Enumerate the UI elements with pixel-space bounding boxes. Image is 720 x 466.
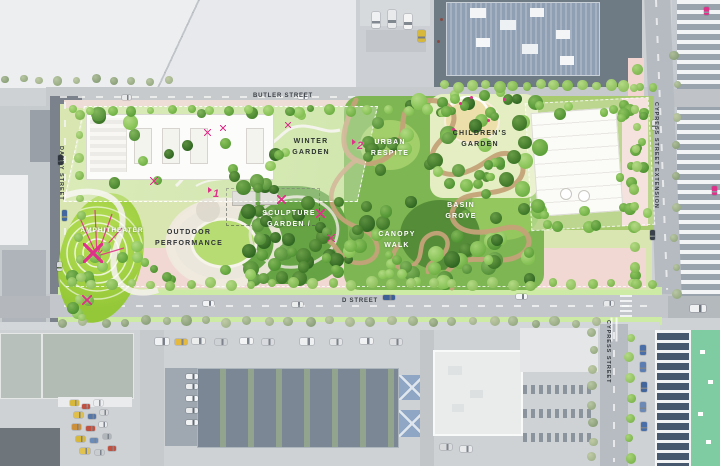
tree-icon [365, 317, 375, 327]
tree-icon [494, 81, 506, 93]
vehicle-icon [712, 186, 717, 195]
tree-icon [334, 197, 344, 207]
tree-icon [631, 279, 642, 290]
winter-garden-label: WINTER GARDEN [278, 136, 344, 158]
vehicle-icon [72, 424, 81, 430]
sculpture-icon [150, 177, 158, 185]
tree-icon [579, 206, 590, 217]
tree-icon [362, 105, 372, 115]
vehicle-icon [203, 301, 214, 306]
vehicle-icon [650, 230, 655, 240]
tree-icon [548, 80, 558, 90]
tree-icon [507, 81, 518, 92]
vehicle-icon [440, 444, 452, 450]
tree-icon [375, 164, 386, 175]
tree-icon [67, 277, 77, 287]
marker-number: 1 [213, 189, 219, 200]
tree-icon [422, 104, 433, 115]
tree-icon [75, 110, 85, 120]
tree-icon [629, 184, 639, 194]
tree-icon [205, 277, 216, 288]
tree-icon [282, 233, 295, 246]
sculpture-icon [204, 129, 211, 136]
vehicle-icon [300, 338, 314, 345]
tree-icon [490, 316, 500, 326]
tree-icon [163, 317, 171, 325]
vehicle-icon [175, 339, 187, 345]
tree-icon [630, 262, 641, 273]
childrens-garden-label: CHILDREN'S GARDEN [444, 128, 516, 150]
tree-icon [123, 115, 137, 129]
tree-icon [648, 280, 657, 289]
marker-number: 2 [357, 141, 363, 152]
tree-icon [309, 239, 322, 252]
tree-icon [587, 401, 596, 410]
vehicle-icon [388, 10, 396, 28]
tree-icon [672, 203, 681, 212]
vehicle-icon [404, 14, 412, 29]
tree-icon [508, 316, 518, 326]
tree-icon [484, 255, 493, 264]
tree-icon [187, 280, 196, 289]
tree-icon [549, 278, 558, 287]
vehicle-icon [122, 95, 131, 100]
tree-icon [188, 105, 196, 113]
map-marker-2: 2 [352, 141, 363, 152]
accent-dot-icon [470, 96, 473, 99]
tree-icon [566, 279, 577, 290]
tree-icon [131, 241, 143, 253]
tree-icon [1, 76, 9, 84]
tree-icon [329, 278, 339, 288]
cypress-street-label: CYPRESS STREET [605, 320, 611, 384]
tree-icon [307, 278, 318, 289]
tree-icon [76, 195, 83, 202]
vehicle-icon [103, 434, 111, 439]
sculpture-icon [327, 234, 335, 242]
tree-icon [117, 252, 128, 263]
vehicle-icon [604, 301, 614, 306]
tree-icon [460, 179, 473, 192]
vehicle-icon [330, 339, 342, 345]
tree-icon [220, 265, 231, 276]
vehicle-icon [86, 426, 95, 431]
tree-icon [518, 136, 532, 150]
tree-icon [165, 76, 173, 84]
tree-icon [630, 202, 639, 211]
tree-icon [20, 75, 28, 83]
vehicle-icon [186, 420, 198, 425]
tree-icon [74, 153, 84, 163]
tree-icon [486, 173, 494, 181]
tree-icon [307, 105, 314, 112]
tree-icon [265, 161, 275, 171]
tree-icon [525, 281, 536, 292]
tree-icon [543, 220, 552, 229]
d-street-label: D STREET [320, 298, 400, 304]
tree-icon [182, 140, 193, 151]
tree-icon [164, 149, 174, 159]
tree-icon [428, 262, 440, 274]
tree-icon [285, 107, 294, 116]
vehicle-icon [360, 338, 373, 344]
vehicle-icon [640, 345, 646, 355]
tree-icon [76, 131, 84, 139]
flag-icon [352, 139, 356, 145]
vehicle-icon [418, 30, 425, 42]
tree-icon [270, 232, 281, 243]
tree-icon [512, 94, 521, 103]
tree-icon [352, 225, 363, 236]
tree-icon [263, 105, 274, 116]
tree-icon [474, 170, 485, 181]
tree-icon [462, 264, 472, 274]
tree-icon [380, 205, 392, 217]
vehicle-icon [186, 396, 198, 401]
tree-icon [587, 381, 597, 391]
tree-icon [429, 318, 438, 327]
tree-icon [588, 279, 598, 289]
tree-icon [165, 281, 175, 291]
tree-icon [245, 269, 256, 280]
tree-icon [490, 212, 502, 224]
tree-icon [549, 316, 559, 326]
vehicle-icon [88, 414, 96, 419]
accent-dot-icon [503, 98, 506, 101]
tree-icon [256, 249, 268, 261]
accent-dot-icon [437, 40, 440, 43]
vehicle-icon [640, 402, 646, 412]
tree-icon [649, 83, 658, 92]
tree-icon [361, 201, 372, 212]
tree-icon [108, 106, 118, 116]
tree-icon [77, 211, 86, 220]
tree-icon [627, 394, 636, 403]
vehicle-icon [690, 305, 706, 312]
tree-icon [441, 106, 452, 117]
dandy-street-label: DANDY STREET [58, 146, 64, 201]
tree-icon [451, 230, 464, 243]
tree-icon [241, 204, 256, 219]
sculpture-icon [82, 295, 92, 305]
tree-icon [293, 107, 305, 119]
vehicle-icon [155, 338, 169, 345]
accent-dot-icon [459, 102, 462, 105]
vehicle-icon [262, 339, 274, 345]
tree-icon [669, 51, 678, 60]
tree-icon [324, 104, 335, 115]
tree-icon [624, 352, 634, 362]
tree-icon [639, 112, 647, 120]
tree-icon [535, 101, 544, 110]
tree-icon [630, 242, 640, 252]
tree-icon [499, 172, 514, 187]
tree-icon [470, 241, 486, 257]
vehicle-icon [186, 408, 198, 413]
sculpture-icon [220, 125, 226, 131]
tree-icon [607, 279, 615, 287]
vehicle-icon [90, 438, 98, 443]
tree-icon [572, 320, 580, 328]
tree-icon [524, 247, 535, 258]
vehicle-icon [186, 374, 198, 379]
tree-icon [106, 279, 118, 291]
vehicle-icon [100, 410, 108, 415]
vehicle-icon [94, 400, 103, 406]
tree-icon [247, 281, 255, 289]
tree-icon [591, 220, 601, 230]
cypress-extension-label: CYPRESS STREET EXTENSION [653, 102, 659, 209]
tree-icon [589, 438, 598, 447]
tree-icon [306, 317, 316, 327]
tree-icon [444, 251, 461, 268]
tree-icon [67, 302, 79, 314]
tree-icon [254, 233, 266, 245]
tree-icon [600, 108, 609, 117]
vehicle-icon [460, 446, 472, 452]
tree-icon [268, 258, 281, 271]
tree-icon [673, 113, 681, 121]
tree-icon [487, 277, 498, 288]
tree-icon [269, 185, 279, 195]
tree-icon [346, 280, 357, 291]
vehicle-icon [108, 446, 116, 451]
vehicle-icon [57, 262, 62, 271]
flag-icon [208, 187, 212, 193]
tree-icon [540, 211, 548, 219]
accent-dot-icon [440, 18, 443, 21]
urban-respite-label: URBAN RESPITE [360, 137, 420, 159]
amphitheater-label: AMPHITHEATER [72, 226, 152, 236]
vehicle-icon [215, 339, 227, 345]
vehicle-icon [99, 422, 107, 427]
tree-icon [181, 315, 192, 326]
vehicle-icon [74, 412, 83, 418]
vehicle-icon [186, 384, 198, 389]
tree-icon [58, 319, 67, 328]
basin-grove-label: BASIN GROVE [436, 200, 486, 222]
vehicle-icon [640, 362, 646, 372]
vehicle-icon [390, 339, 402, 345]
butler-street-label: BUTLER STREET [233, 93, 333, 99]
tree-icon [643, 208, 652, 217]
tree-icon [229, 171, 240, 182]
tree-icon [632, 64, 643, 75]
tree-icon [447, 317, 456, 326]
outdoor-performance-label: OUTDOOR PERFORMANCE [146, 227, 232, 249]
vehicle-icon [62, 210, 67, 221]
tree-icon [76, 273, 86, 283]
tree-icon [405, 196, 417, 208]
tree-icon [609, 105, 618, 114]
sculpture-icon [285, 122, 291, 128]
accent-dot-icon [487, 119, 490, 122]
vehicle-icon [516, 294, 527, 299]
tree-icon [592, 317, 601, 326]
vehicle-icon [641, 422, 647, 431]
tree-icon [126, 106, 137, 117]
tree-icon [532, 139, 549, 156]
tree-icon [236, 180, 251, 195]
tree-icon [283, 317, 293, 327]
sculpture-icon [277, 195, 286, 204]
map-marker-1: 1 [208, 189, 219, 200]
vehicle-icon [641, 382, 647, 392]
sculpture-icon [83, 243, 103, 263]
vehicle-icon [76, 436, 85, 442]
vehicle-icon [240, 338, 253, 344]
tree-icon [532, 320, 540, 328]
tree-icon [473, 179, 483, 189]
tree-icon [372, 117, 384, 129]
vehicle-icon [292, 302, 303, 307]
tree-icon [672, 141, 680, 149]
tree-icon [618, 80, 630, 92]
tree-icon [631, 222, 641, 232]
tree-icon [440, 80, 450, 90]
tree-icon [406, 278, 416, 288]
vehicle-icon [70, 400, 79, 406]
tree-icon [590, 346, 598, 354]
vehicle-icon [82, 404, 90, 409]
tree-icon [408, 316, 418, 326]
tree-icon [386, 279, 397, 290]
vehicle-icon [704, 7, 709, 15]
tree-icon [616, 173, 625, 182]
tree-icon [129, 129, 141, 141]
tree-icon [587, 452, 596, 461]
sculpture-garden-label: SCULPTURE GARDEN / [255, 208, 323, 230]
tree-icon [385, 269, 394, 278]
tree-icon [467, 280, 478, 291]
tree-icon [672, 289, 682, 299]
vehicle-icon [80, 448, 90, 454]
tree-icon [577, 80, 588, 91]
tree-icon [508, 280, 519, 291]
site-plan-map: BUTLER STREET D STREET DANDY STREET CYPR… [0, 0, 720, 466]
tree-icon [146, 281, 155, 290]
tree-icon [626, 453, 636, 463]
tree-icon [322, 253, 332, 263]
tree-icon [429, 278, 439, 288]
tree-icon [86, 280, 96, 290]
vehicle-icon [95, 450, 104, 455]
vehicle-icon [192, 338, 205, 344]
tree-icon [35, 77, 43, 85]
tree-icon [78, 314, 85, 321]
tree-icon [73, 77, 80, 84]
canopy-walk-label: CANOPY WALK [372, 229, 422, 251]
tree-icon [298, 261, 310, 273]
vehicle-icon [372, 12, 380, 28]
